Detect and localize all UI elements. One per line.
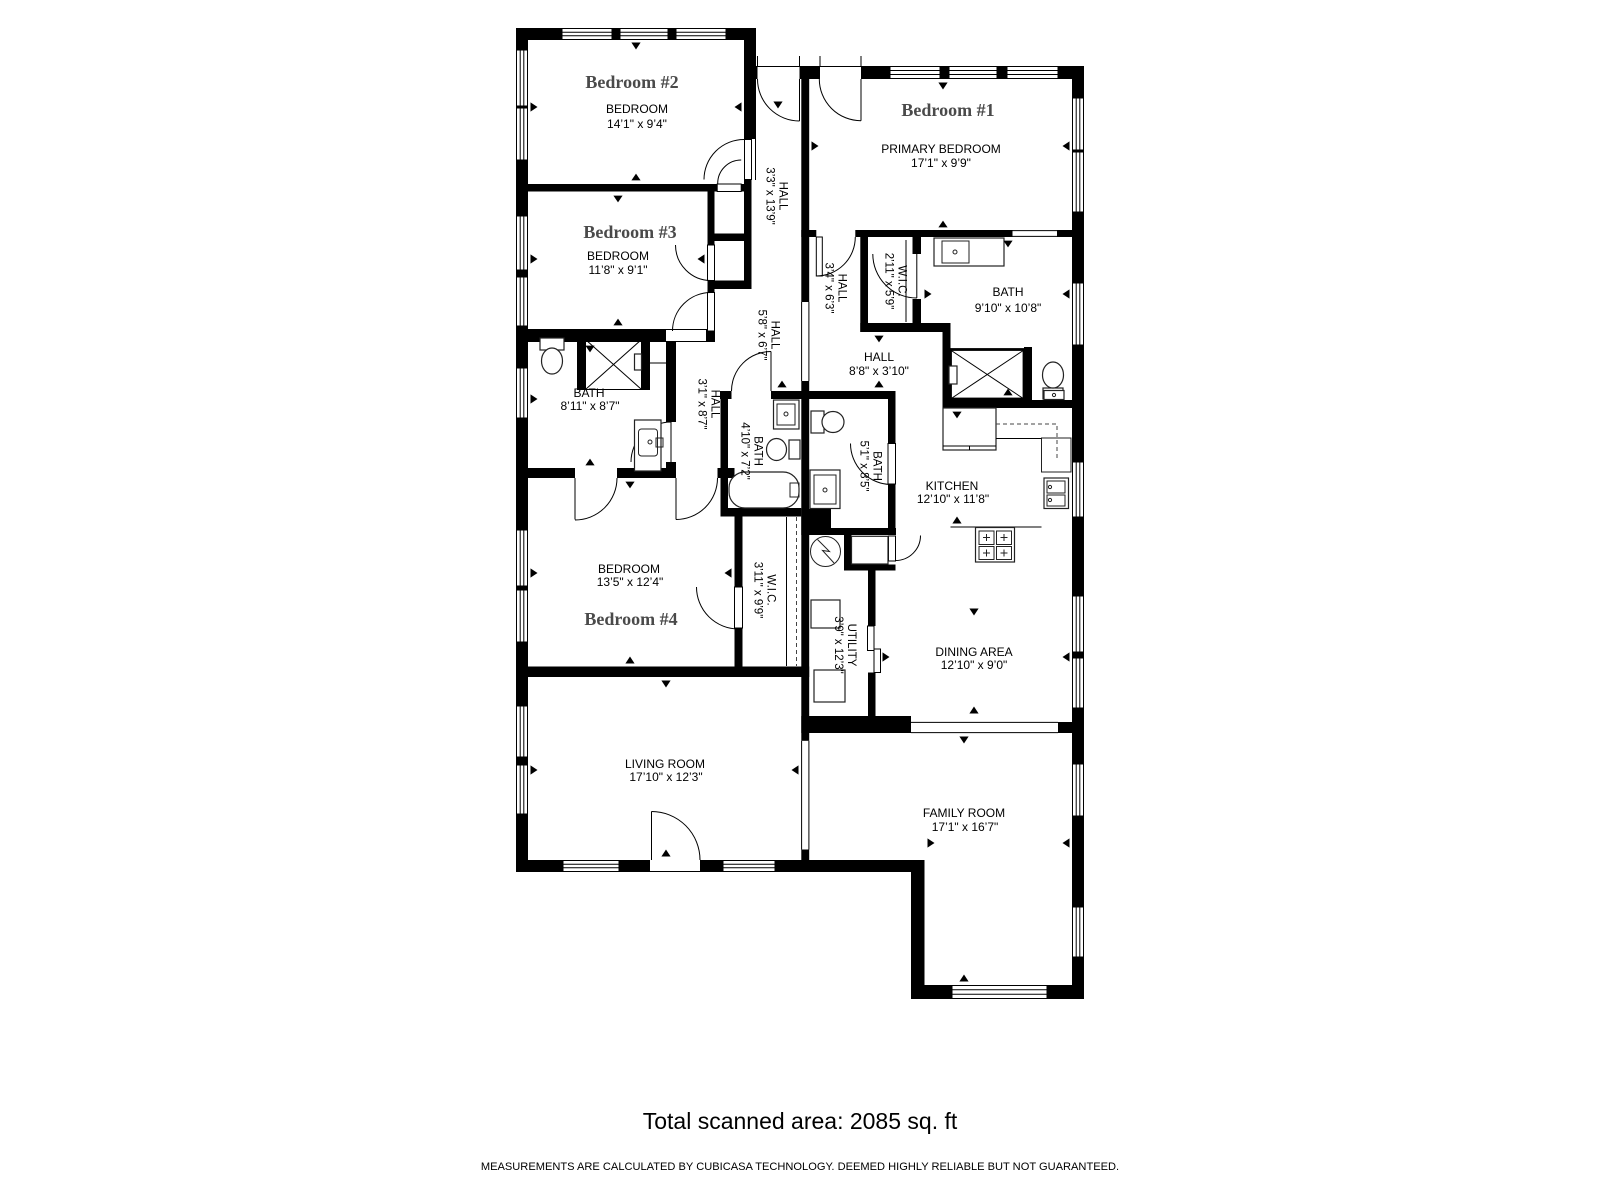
svg-text:8’8" x 3’10": 8’8" x 3’10" bbox=[849, 364, 909, 378]
svg-text:BEDROOM: BEDROOM bbox=[598, 562, 660, 576]
svg-text:HALL: HALL bbox=[769, 321, 781, 350]
svg-text:5’1" x 8’5": 5’1" x 8’5" bbox=[858, 441, 870, 492]
svg-text:4’10" x 7’2": 4’10" x 7’2" bbox=[739, 422, 751, 479]
svg-text:LIVING ROOM: LIVING ROOM bbox=[625, 757, 705, 771]
svg-text:9’10" x 10’8": 9’10" x 10’8" bbox=[975, 301, 1042, 315]
svg-text:DINING AREA: DINING AREA bbox=[935, 645, 1012, 659]
svg-text:FAMILY ROOM: FAMILY ROOM bbox=[923, 806, 1005, 820]
svg-text:Bedroom #4: Bedroom #4 bbox=[584, 609, 677, 629]
svg-text:8’11" x 8’7": 8’11" x 8’7" bbox=[561, 399, 620, 413]
svg-text:MEASUREMENTS ARE CALCULATED BY: MEASUREMENTS ARE CALCULATED BY CUBICASA … bbox=[481, 1161, 1119, 1173]
svg-text:3’1" x 8’7": 3’1" x 8’7" bbox=[696, 379, 708, 430]
svg-text:BATH: BATH bbox=[871, 451, 883, 481]
svg-text:BEDROOM: BEDROOM bbox=[587, 249, 649, 263]
svg-text:Total scanned area: 2085 sq. f: Total scanned area: 2085 sq. ft bbox=[643, 1108, 958, 1134]
svg-text:2’11" x 5’9": 2’11" x 5’9" bbox=[883, 253, 895, 310]
svg-text:3’11" x 9’9": 3’11" x 9’9" bbox=[752, 562, 764, 619]
svg-text:BATH: BATH bbox=[752, 436, 764, 466]
svg-text:3’9" x 12’3": 3’9" x 12’3" bbox=[832, 616, 844, 673]
svg-text:HALL: HALL bbox=[777, 182, 789, 211]
svg-text:KITCHEN: KITCHEN bbox=[926, 479, 979, 493]
svg-text:11’8" x 9’1": 11’8" x 9’1" bbox=[589, 263, 648, 277]
svg-text:Bedroom #3: Bedroom #3 bbox=[583, 222, 676, 242]
svg-text:3’3" x 13’9": 3’3" x 13’9" bbox=[764, 167, 776, 224]
svg-text:BATH: BATH bbox=[992, 285, 1023, 299]
svg-text:5’8" x 6’7": 5’8" x 6’7" bbox=[756, 310, 768, 361]
svg-text:PRIMARY BEDROOM: PRIMARY BEDROOM bbox=[881, 142, 1001, 156]
svg-text:W.I.C.: W.I.C. bbox=[896, 265, 908, 296]
svg-text:BEDROOM: BEDROOM bbox=[606, 102, 668, 116]
svg-text:12’10" x 9’0": 12’10" x 9’0" bbox=[941, 658, 1008, 672]
svg-text:Bedroom #2: Bedroom #2 bbox=[585, 72, 678, 92]
svg-text:HALL: HALL bbox=[836, 274, 848, 303]
svg-text:14’1" x 9’4": 14’1" x 9’4" bbox=[607, 117, 667, 131]
svg-text:12’10" x 11’8": 12’10" x 11’8" bbox=[917, 492, 989, 506]
svg-text:HALL: HALL bbox=[709, 390, 721, 419]
svg-text:W.I.C.: W.I.C. bbox=[765, 574, 777, 605]
svg-text:Bedroom #1: Bedroom #1 bbox=[901, 100, 994, 120]
svg-text:3’4" x 6’3": 3’4" x 6’3" bbox=[823, 263, 835, 314]
svg-text:17’1" x 9’9": 17’1" x 9’9" bbox=[911, 156, 971, 170]
svg-text:17’10" x 12’3": 17’10" x 12’3" bbox=[629, 770, 702, 784]
svg-text:BATH: BATH bbox=[573, 386, 604, 400]
svg-text:13’5" x 12’4": 13’5" x 12’4" bbox=[597, 575, 664, 589]
svg-text:17’1" x 16’7": 17’1" x 16’7" bbox=[932, 820, 999, 834]
svg-text:UTILITY: UTILITY bbox=[845, 624, 857, 667]
svg-text:HALL: HALL bbox=[864, 350, 894, 364]
